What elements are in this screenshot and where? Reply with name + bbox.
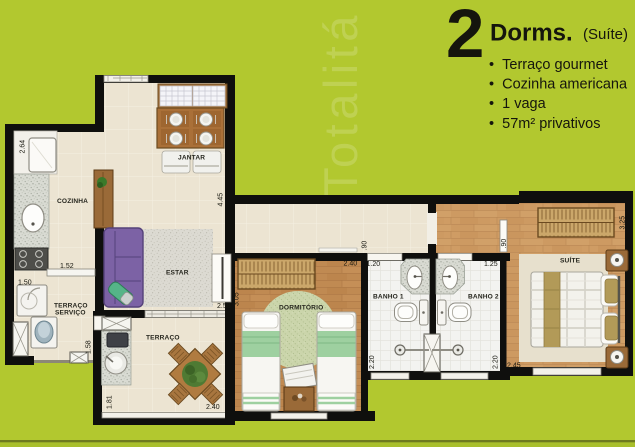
svg-text:(Suíte): (Suíte) [583, 26, 628, 43]
svg-text:SUÍTE: SUÍTE [560, 256, 581, 265]
svg-text:BANHO 2: BANHO 2 [468, 294, 499, 301]
svg-text:1.25: 1.25 [484, 261, 498, 268]
svg-text:.90: .90 [362, 241, 369, 251]
svg-text:2: 2 [446, 0, 484, 72]
svg-text:Totalitá: Totalitá [314, 11, 367, 196]
svg-text:.90: .90 [501, 239, 508, 249]
svg-text:1.52: 1.52 [60, 263, 74, 270]
svg-text:SERVIÇO: SERVIÇO [55, 310, 86, 317]
svg-text:4.45: 4.45 [218, 193, 225, 207]
svg-text:2.40: 2.40 [344, 261, 358, 268]
svg-text:3.05: 3.05 [234, 292, 241, 306]
svg-text:TERRAÇO: TERRAÇO [146, 335, 180, 342]
svg-text:2.64: 2.64 [20, 140, 27, 154]
svg-text:1.81: 1.81 [107, 395, 114, 409]
svg-text:• 57m² privativos: • 57m² privativos [489, 116, 600, 132]
svg-text:ESTAR: ESTAR [166, 270, 189, 277]
svg-text:• Terraço gourmet: • Terraço gourmet [489, 57, 608, 73]
svg-text:• Cozinha americana: • Cozinha americana [489, 77, 628, 93]
svg-text:1.58: 1.58 [86, 340, 93, 354]
svg-text:3.25: 3.25 [620, 216, 627, 230]
svg-text:2.45: 2.45 [507, 363, 521, 370]
svg-text:1.20: 1.20 [367, 261, 381, 268]
svg-text:BANHO 1: BANHO 1 [373, 294, 404, 301]
svg-text:2.20: 2.20 [493, 355, 500, 369]
svg-text:• 1 vaga: • 1 vaga [489, 96, 547, 112]
svg-text:TERRAÇO: TERRAÇO [54, 303, 88, 310]
svg-text:Dorms.: Dorms. [490, 20, 573, 47]
svg-text:2.58: 2.58 [217, 303, 231, 310]
svg-text:2.40: 2.40 [206, 404, 220, 411]
svg-text:DORMITÓRIO: DORMITÓRIO [279, 303, 323, 312]
svg-text:2.20: 2.20 [369, 355, 376, 369]
svg-text:COZINHA: COZINHA [57, 198, 88, 205]
svg-text:JANTAR: JANTAR [178, 155, 205, 162]
